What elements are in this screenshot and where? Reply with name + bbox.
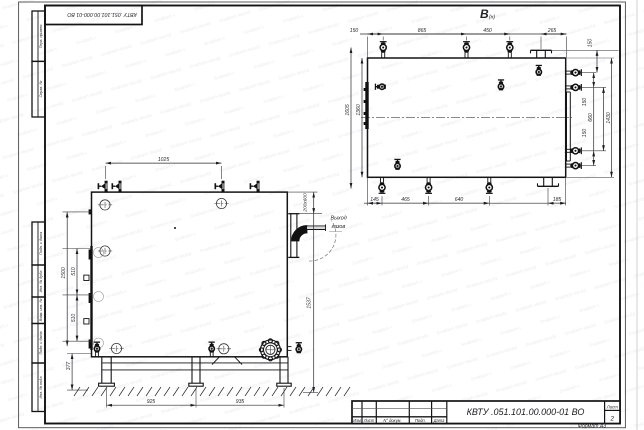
svg-text:150: 150 (588, 39, 594, 48)
svg-text:200х600: 200х600 (303, 193, 309, 213)
svg-text:Лист: Лист (363, 418, 375, 423)
svg-text:865: 865 (418, 28, 427, 34)
svg-text:377: 377 (66, 362, 72, 371)
svg-text:510: 510 (71, 314, 77, 323)
svg-text:1605: 1605 (345, 104, 351, 115)
svg-text:Формат А3: Формат А3 (578, 423, 606, 429)
svg-text:1500: 1500 (61, 267, 67, 278)
svg-text:1537: 1537 (307, 297, 313, 308)
svg-text:газов: газов (332, 224, 346, 230)
svg-text:935: 935 (236, 399, 245, 405)
svg-text:660: 660 (588, 113, 594, 122)
svg-text:Перв. примен.: Перв. примен. (39, 24, 43, 49)
svg-text:145: 145 (370, 197, 379, 203)
svg-text:450: 450 (483, 28, 492, 34)
svg-text:Лист: Лист (606, 404, 618, 409)
svg-text:2: 2 (610, 416, 615, 423)
svg-text:925: 925 (147, 399, 156, 405)
svg-text:185: 185 (553, 197, 562, 203)
svg-text:Подп. и дата: Подп. и дата (39, 232, 43, 255)
svg-text:Справ. №: Справ. № (39, 81, 43, 98)
svg-text:Инв. № подл.: Инв. № подл. (39, 376, 43, 399)
svg-text:N° докум.: N° докум. (383, 418, 401, 423)
svg-text:465: 465 (401, 197, 410, 203)
svg-text:Инв. № дубл.: Инв. № дубл. (39, 270, 43, 293)
svg-text:150: 150 (582, 129, 588, 138)
svg-text:150: 150 (350, 28, 359, 34)
svg-text:150: 150 (582, 98, 588, 107)
svg-text:Подп. и дата: Подп. и дата (39, 331, 43, 354)
svg-text:Изм: Изм (353, 418, 361, 423)
svg-text:Дата: Дата (433, 418, 446, 423)
svg-text:В: В (480, 7, 489, 21)
svg-text:640: 640 (455, 197, 464, 203)
svg-text:(н): (н) (489, 15, 495, 21)
svg-text:1360: 1360 (356, 104, 362, 115)
svg-text:Взам. инв. №: Взам. инв. № (39, 299, 43, 322)
svg-text:265: 265 (547, 28, 557, 34)
svg-text:КВТУ .051.101.00.000-01 ВО: КВТУ .051.101.00.000-01 ВО (467, 407, 585, 417)
svg-text:1025: 1025 (158, 157, 169, 163)
svg-text:Выход: Выход (331, 216, 347, 222)
svg-text:1430: 1430 (606, 112, 612, 123)
svg-text:КВТУ .051.101.00.000-01 ВО: КВТУ .051.101.00.000-01 ВО (67, 11, 136, 17)
svg-text:Подп.: Подп. (415, 418, 426, 423)
svg-text:510: 510 (71, 267, 77, 276)
